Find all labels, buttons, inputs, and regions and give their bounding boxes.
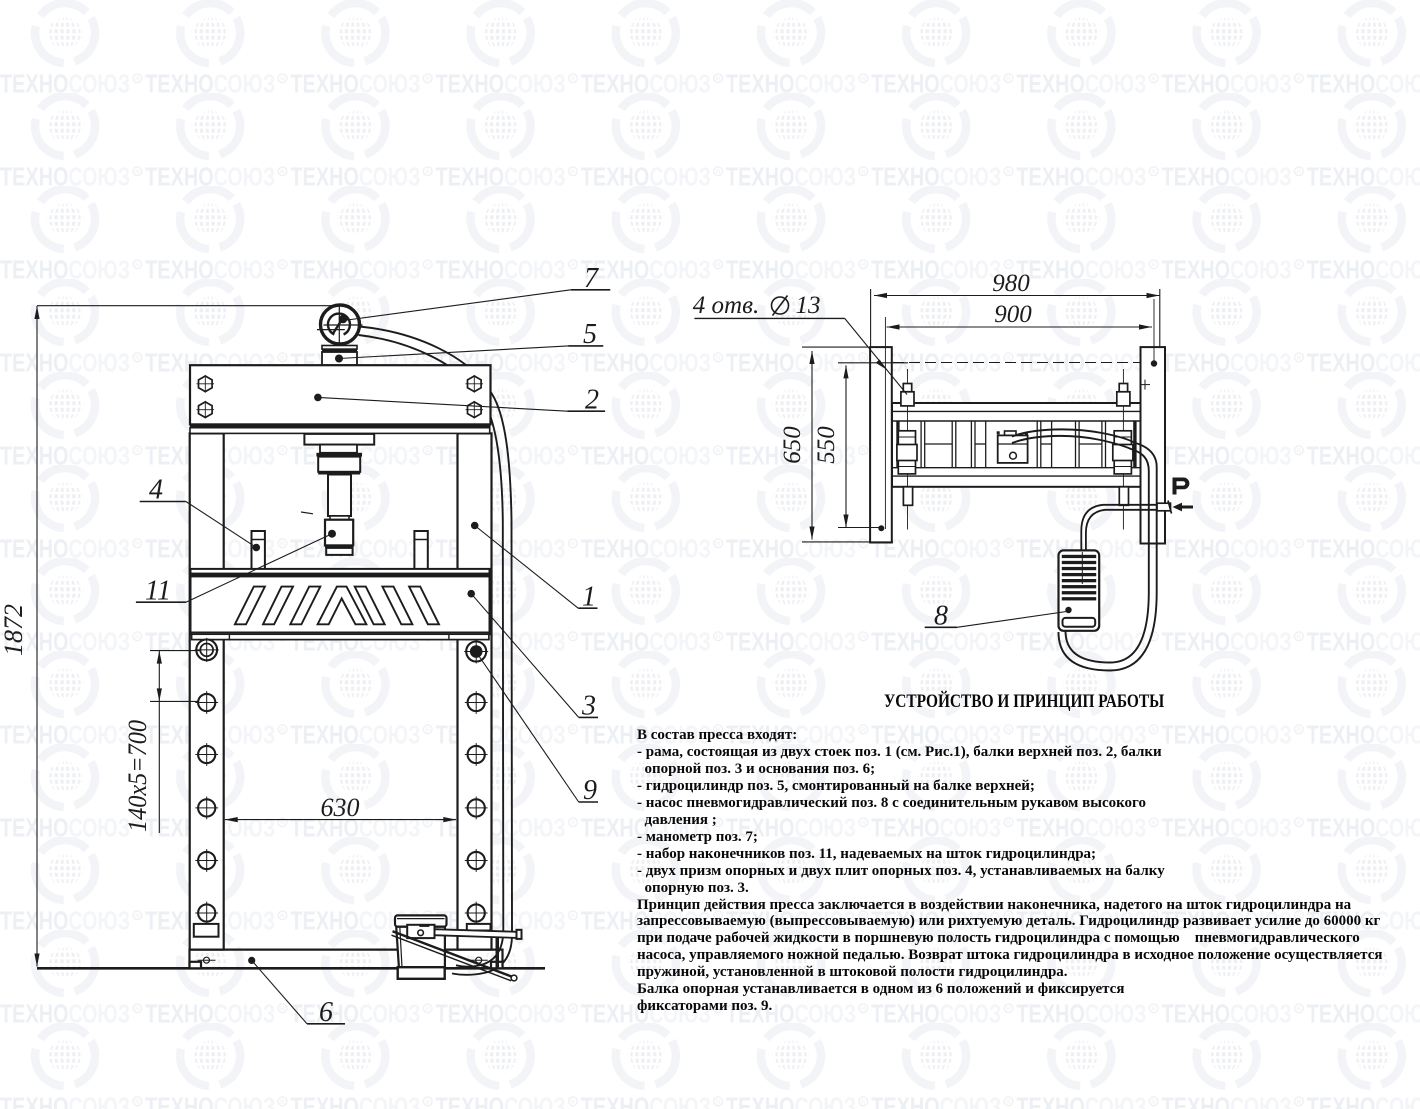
svg-text:5: 5	[583, 319, 597, 350]
svg-text:11: 11	[145, 576, 171, 607]
svg-text:4 отв.: 4 отв.	[693, 292, 759, 319]
svg-text:9: 9	[583, 775, 597, 806]
svg-text:630: 630	[321, 793, 360, 822]
svg-text:2: 2	[585, 385, 599, 416]
svg-text:140х5=700: 140х5=700	[123, 720, 152, 832]
svg-text:3: 3	[581, 691, 596, 722]
svg-text:1: 1	[582, 582, 596, 613]
svg-text:13: 13	[796, 292, 821, 319]
svg-text:980: 980	[992, 270, 1030, 297]
svg-text:6: 6	[319, 997, 333, 1028]
svg-text:4: 4	[149, 475, 163, 506]
svg-text:650: 650	[779, 426, 806, 464]
svg-text:1872: 1872	[0, 604, 28, 656]
svg-text:7: 7	[584, 263, 599, 294]
svg-text:8: 8	[934, 601, 948, 632]
svg-text:550: 550	[813, 426, 840, 464]
svg-text:900: 900	[994, 301, 1032, 328]
